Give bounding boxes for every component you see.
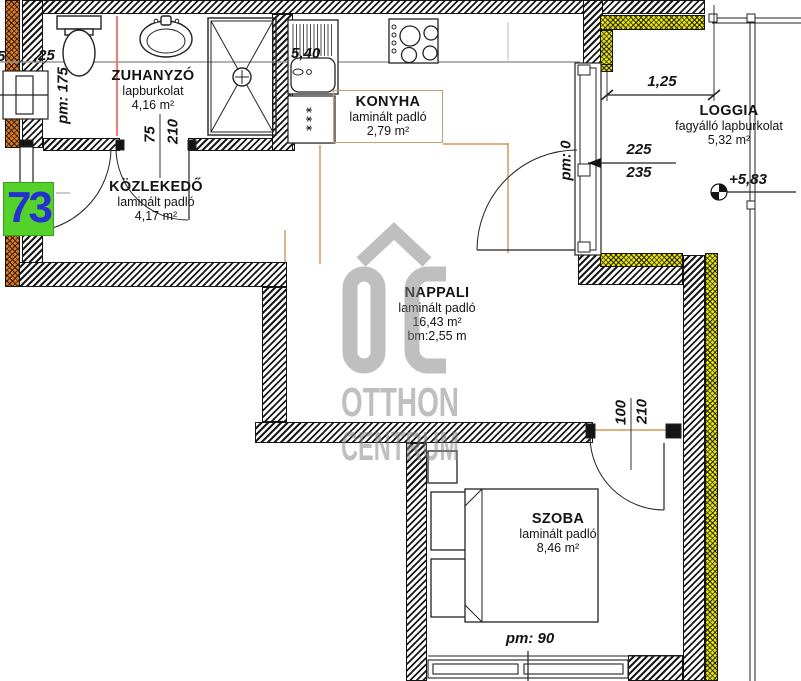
room-ceiling: bm:2,55 m — [357, 329, 517, 343]
room-area: 2,79 m² — [334, 124, 442, 138]
stove-icon — [389, 19, 438, 63]
room-label-szoba: SZOBA laminált padló 8,46 m² — [478, 511, 638, 555]
room-area: 4,16 m² — [83, 98, 223, 112]
dishwasher-icon — [288, 96, 335, 143]
unit-number: 73 — [7, 183, 50, 232]
room-area: 16,43 m² — [357, 315, 517, 329]
room-floor: laminált padló — [478, 527, 638, 541]
room-area: 5,32 m² — [649, 133, 801, 147]
dim-bedroom-sill: pm: 90 — [498, 630, 562, 647]
room-area: 4,17 m² — [76, 209, 236, 223]
room-area: 8,46 m² — [478, 541, 638, 555]
room-floor: laminált padló — [76, 195, 236, 209]
room-label-kozlekedo: KÖZLEKEDŐ laminált padló 4,17 m² — [76, 179, 236, 223]
room-label-loggia: LOGGIA fagyálló lapburkolat 5,32 m² — [649, 103, 801, 147]
room-name: NAPPALI — [357, 285, 517, 301]
room-floor: laminált padló — [357, 301, 517, 315]
dim-bedroom-door-width: 100 — [613, 393, 630, 433]
unit-number-badge: 73 — [3, 182, 54, 236]
dim-bedroom-door-height: 210 — [634, 392, 651, 432]
room-floor: fagyálló lapburkolat — [649, 119, 801, 133]
room-label-nappali: NAPPALI laminált padló 16,43 m² bm:2,55 … — [357, 285, 517, 343]
dim-bath-door-width: 75 — [142, 115, 159, 155]
room-name: KÖZLEKEDŐ — [76, 179, 236, 195]
dim-left-partial: 5 — [0, 48, 5, 65]
bath-window — [0, 71, 48, 119]
washbasin-icon — [140, 16, 192, 57]
room-name: LOGGIA — [649, 103, 801, 119]
bedroom-window — [428, 656, 683, 678]
room-name: KONYHA — [334, 94, 442, 110]
dim-balcony-sill: pm: 0 — [558, 126, 575, 196]
room-label-konyha: KONYHA laminált padló 2,79 m² — [333, 90, 443, 143]
room-label-zuhanyzo: ZUHANYZÓ lapburkolat 4,16 m² — [83, 68, 223, 112]
dim-loggia-door-width: 225 — [615, 141, 663, 158]
dim-bath-door-height: 210 — [165, 112, 182, 152]
room-name: ZUHANYZÓ — [83, 68, 223, 84]
dim-kitchen-run: 5,40 — [291, 45, 320, 62]
loggia-door — [477, 63, 601, 255]
room-floor: lapburkolat — [83, 84, 223, 98]
floor-plan: ZUHANYZÓ lapburkolat 4,16 m² KÖZLEKEDŐ l… — [0, 0, 801, 681]
dim-wall-top-left: ,25 — [34, 47, 55, 64]
dim-loggia-door-height: 235 — [615, 164, 663, 181]
dim-bath-sill: pm: 175 — [55, 61, 72, 131]
dim-elevation: +5,83 — [729, 171, 767, 188]
room-floor: laminált padló — [334, 110, 442, 124]
dim-loggia-width: 1,25 — [630, 73, 694, 90]
room-name: SZOBA — [478, 511, 638, 527]
